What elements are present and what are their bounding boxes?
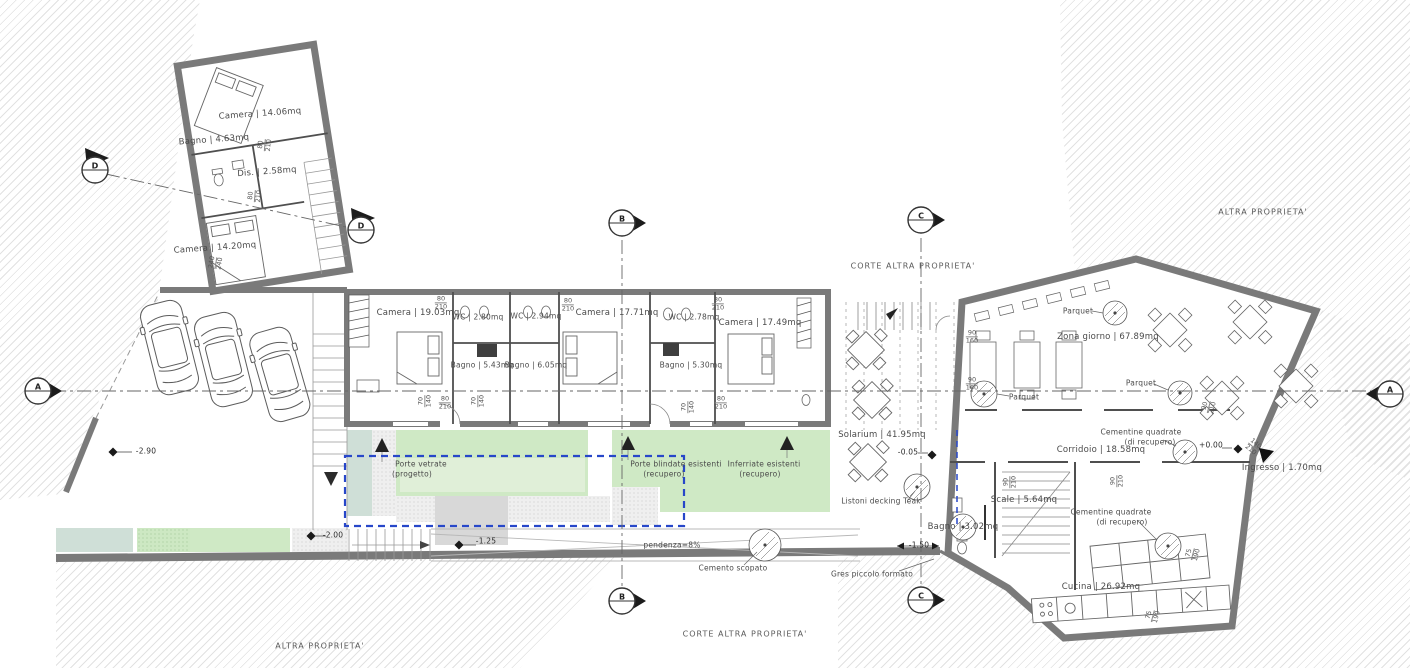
legend-label-porte-vetrate: Porte vetrate [395,460,447,469]
dim-height: 210 [562,305,574,313]
material-label-cemento: Cemento scopato [699,564,768,573]
section-letter: C [918,592,924,601]
section-letter: D [92,162,99,171]
car [135,297,204,398]
dim-height: 210 [1117,475,1125,487]
level-label: -2.90 [136,447,156,456]
dim-height: 210 [435,303,447,311]
section-marker-b-bottom [609,588,646,614]
door-dim: 70140 [680,401,695,413]
legend-label-porte-blindate: (recupero) [643,470,684,479]
entrance-arrow-icon [1259,448,1274,463]
court-other-property-label: CORTE ALTRA PROPRIETA' [851,262,976,271]
room-label-cucina: Cucina | 26.92mq [1062,582,1140,592]
section-marker-b-top [609,210,646,236]
dim-width: 90 [1002,478,1009,486]
room-label-ingresso: Ingresso | 1.70mq [1242,463,1322,473]
room-label-solarium: Solarium | 41.95mq [838,430,926,440]
shower [477,344,497,357]
section-marker-a-right [1366,381,1403,407]
room-label-wc: WC | 2.80mq [453,313,504,322]
parked-cars [135,297,316,425]
door-marker-arrows [375,436,794,452]
section-marker-c-bottom [908,587,945,613]
window-dim: 240240 [207,256,224,271]
car [244,324,315,426]
bed [728,334,774,384]
dim-width: 70 [417,397,424,405]
dim-width: 90 [968,376,976,383]
room-label-bagno: Bagno | 5.30mq [660,361,723,370]
door-dim: 80210 [247,189,263,203]
door-dim: 70140 [470,395,485,407]
dim-width: 80 [714,296,722,303]
material-label-parquet: Parquet [1126,379,1156,388]
room-label-wc: WC | 2.94mq [511,312,562,321]
material-label-cementine: (di recupero) [1125,438,1176,447]
level-label: +0.00 [1199,441,1223,450]
door-dim: 90210 [1002,476,1017,488]
room-label-camera: Camera | 17.49mq [719,318,802,328]
dim-width: 70 [680,403,687,411]
side-stair [313,293,347,530]
level-label: -0.05 [898,448,918,457]
legend-label-porte-blindate: Porte blindate esistenti [630,460,722,469]
door-dim: 80210 [712,296,724,311]
dim-height: 210 [712,304,724,312]
room-label-bagno: Bagno | 6.05mq [505,361,568,370]
door-dim: 70140 [417,395,432,407]
dim-width: 80 [717,395,725,402]
level-label: -1.50 [909,541,929,550]
outdoor-table [833,316,905,494]
car [189,309,258,410]
room-label-zona-giorno: Zona giorno | 67.89mq [1057,332,1159,342]
dim-height: 140 [478,395,486,407]
bed [563,332,617,384]
section-letter: B [619,215,625,224]
dim-width: 70 [470,397,477,405]
section-letter: A [35,383,41,392]
door-dim: 80210 [562,297,574,312]
section-letter: C [918,212,924,221]
door-dim: 90210 [1109,475,1124,487]
material-label-parquet: Parquet [1009,393,1039,402]
dim-width: 90 [968,329,976,336]
level-label: -2.00 [323,531,343,540]
other-property-label: ALTRA PROPRIETA' [275,642,364,651]
material-label-cementine: Cementine quadrate [1070,508,1151,517]
solarium [833,302,954,495]
room-label-wc: WC | 2.78mq [669,313,720,322]
dim-width: 90 [1109,477,1116,485]
section-letter: D [358,222,365,231]
door-dim: 80210 [439,395,451,410]
material-label-cementine: Cementine quadrate [1100,428,1181,437]
dim-height: 210 [715,403,727,411]
dim-width: 80 [437,295,445,302]
dim-height: 210 [439,403,451,411]
floor-plan-canvas: ALTRA PROPRIETA' ALTRA PROPRIETA' CORTE … [0,0,1410,668]
dim-height: 160 [966,337,978,345]
room-label-scale: Scale | 5.64mq [991,495,1058,505]
material-label-gres: Gres piccolo formato [831,570,913,579]
other-property-label: ALTRA PROPRIETA' [1218,208,1307,217]
level-label: -1.25 [476,537,496,546]
dim-height: 210 [1010,476,1018,488]
door-dim: 80210 [435,295,447,310]
room-label-corridoio: Corridoio | 18.58mq [1057,445,1146,455]
dim-height: 160 [966,384,978,392]
shower [663,343,679,356]
room-label-bagno: Bagno | 3.02mq [928,522,999,532]
door-dim: 80210 [257,138,273,152]
dim-height: 210 [264,139,273,152]
dim-height: 210 [254,190,263,203]
bed [397,332,442,384]
legend-label-inferriate: Inferriate esistenti [728,460,801,469]
material-label-decking: Listoni decking Teak [841,497,921,506]
slope-label: pendenza=8% [643,541,700,550]
washer-column [349,295,369,347]
door-dim: 80210 [715,395,727,410]
room-label-camera: Camera | 17.71mq [576,308,659,318]
section-letter: A [1387,386,1393,395]
material-label-cementine: (di recupero) [1097,518,1148,527]
dim-height: 140 [425,395,433,407]
section-marker-a-left [25,378,62,404]
dim-width: 80 [564,297,572,304]
section-marker-c-top [908,207,945,233]
dim-height: 140 [688,401,696,413]
window-dim: 90160 [966,329,978,344]
section-letter: B [619,593,625,602]
window-dim: 90160 [966,376,978,391]
legend-label-inferriate: (recupero) [739,470,780,479]
sink [357,380,379,392]
dim-width: 80 [441,395,449,402]
material-label-parquet: Parquet [1063,307,1093,316]
court-other-property-label: CORTE ALTRA PROPRIETA' [683,630,808,639]
legend-label-porte-vetrate: (progetto) [392,470,432,479]
